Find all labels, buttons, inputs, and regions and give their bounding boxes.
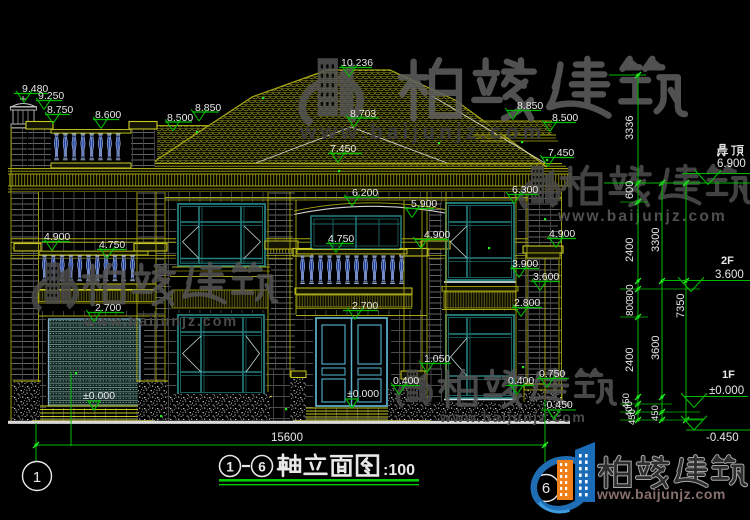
svg-text:www.baijunjz.com: www.baijunjz.com — [83, 314, 238, 330]
svg-text:www.baijunjz.com: www.baijunjz.com — [596, 486, 726, 502]
svg-text:300: 300 — [625, 284, 636, 301]
svg-text:3.600: 3.600 — [715, 269, 744, 281]
svg-text:www.baijunjz.com: www.baijunjz.com — [299, 121, 545, 144]
svg-text:600: 600 — [624, 181, 636, 199]
svg-text:450: 450 — [650, 405, 661, 421]
svg-text:6.900: 6.900 — [717, 158, 746, 170]
svg-text::100: :100 — [383, 462, 415, 479]
svg-text:-0.450: -0.450 — [706, 432, 739, 444]
svg-text:1: 1 — [226, 460, 234, 475]
svg-text:450: 450 — [627, 409, 638, 425]
svg-text:±0.000: ±0.000 — [347, 388, 379, 400]
svg-text:1: 1 — [33, 469, 41, 486]
svg-text:3300: 3300 — [650, 228, 662, 252]
svg-text:3600: 3600 — [650, 336, 662, 360]
svg-text:2400: 2400 — [624, 238, 636, 262]
svg-text:800: 800 — [625, 299, 636, 316]
svg-text:6: 6 — [542, 480, 550, 497]
svg-text:6: 6 — [258, 460, 266, 475]
svg-text:www.baijunjz.com: www.baijunjz.com — [557, 208, 727, 225]
svg-text:±0.000: ±0.000 — [83, 390, 115, 402]
svg-text:15600: 15600 — [271, 432, 303, 444]
svg-text:2400: 2400 — [624, 348, 636, 372]
svg-text:-0.450: -0.450 — [543, 399, 573, 411]
svg-text:7350: 7350 — [675, 294, 687, 318]
svg-text:3336: 3336 — [624, 116, 636, 140]
svg-text:2F: 2F — [721, 255, 734, 267]
svg-text:1F: 1F — [722, 369, 735, 381]
svg-text:www.baijunjz.com: www.baijunjz.com — [439, 409, 586, 425]
svg-text:±0.000: ±0.000 — [709, 385, 744, 397]
